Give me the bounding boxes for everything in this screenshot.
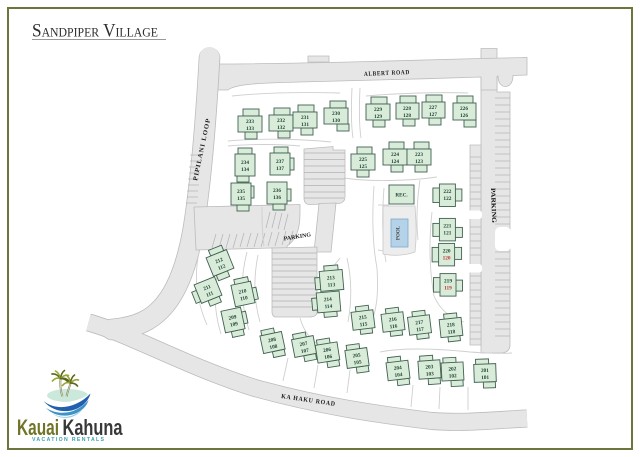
svg-text:102: 102 bbox=[449, 373, 458, 379]
svg-text:219: 219 bbox=[444, 279, 452, 285]
svg-text:205: 205 bbox=[352, 352, 361, 359]
svg-text:116: 116 bbox=[389, 323, 398, 330]
svg-text:236: 236 bbox=[273, 188, 281, 194]
svg-text:136: 136 bbox=[273, 195, 281, 201]
svg-text:213: 213 bbox=[327, 275, 336, 282]
svg-text:130: 130 bbox=[332, 118, 340, 124]
svg-text:Sandpiper Village: Sandpiper Village bbox=[32, 21, 158, 42]
svg-text:115: 115 bbox=[359, 321, 368, 328]
svg-text:237: 237 bbox=[276, 159, 284, 165]
svg-text:105: 105 bbox=[353, 359, 362, 366]
svg-text:129: 129 bbox=[374, 114, 382, 120]
svg-text:101: 101 bbox=[481, 375, 490, 381]
svg-text:221: 221 bbox=[443, 223, 451, 229]
svg-text:137: 137 bbox=[276, 166, 284, 172]
svg-text:120: 120 bbox=[443, 255, 451, 261]
svg-text:135: 135 bbox=[237, 196, 245, 202]
svg-text:104: 104 bbox=[394, 372, 403, 379]
svg-text:203: 203 bbox=[425, 364, 434, 371]
svg-text:214: 214 bbox=[324, 297, 333, 304]
svg-text:218: 218 bbox=[447, 322, 456, 329]
svg-text:226: 226 bbox=[460, 106, 468, 112]
svg-text:POOL: POOL bbox=[397, 225, 402, 240]
svg-text:132: 132 bbox=[277, 125, 285, 131]
svg-text:204: 204 bbox=[393, 365, 402, 372]
svg-text:114: 114 bbox=[324, 304, 332, 311]
svg-text:223: 223 bbox=[415, 152, 423, 158]
svg-text:131: 131 bbox=[301, 122, 309, 128]
svg-text:229: 229 bbox=[374, 107, 382, 113]
svg-text:REC.: REC. bbox=[395, 193, 408, 199]
svg-text:227: 227 bbox=[429, 105, 437, 111]
svg-text:106: 106 bbox=[324, 354, 333, 361]
svg-text:235: 235 bbox=[237, 189, 245, 195]
svg-text:126: 126 bbox=[460, 113, 468, 119]
svg-text:234: 234 bbox=[241, 160, 249, 166]
svg-text:VACATION RENTALS: VACATION RENTALS bbox=[32, 437, 105, 443]
svg-text:127: 127 bbox=[429, 112, 437, 118]
svg-text:224: 224 bbox=[391, 152, 399, 158]
svg-text:124: 124 bbox=[391, 159, 399, 165]
svg-text:133: 133 bbox=[246, 126, 254, 132]
svg-text:215: 215 bbox=[358, 315, 367, 322]
svg-text:202: 202 bbox=[448, 366, 457, 372]
svg-text:117: 117 bbox=[416, 326, 425, 333]
svg-text:201: 201 bbox=[481, 368, 490, 374]
svg-text:128: 128 bbox=[403, 113, 411, 119]
svg-text:230: 230 bbox=[332, 111, 340, 117]
svg-text:119: 119 bbox=[444, 286, 452, 292]
svg-text:222: 222 bbox=[443, 189, 451, 195]
svg-text:220: 220 bbox=[443, 248, 451, 254]
svg-text:225: 225 bbox=[359, 157, 367, 163]
svg-text:121: 121 bbox=[443, 230, 451, 236]
svg-text:122: 122 bbox=[443, 196, 451, 202]
svg-text:233: 233 bbox=[246, 119, 254, 125]
svg-text:228: 228 bbox=[403, 106, 411, 112]
svg-text:232: 232 bbox=[277, 118, 285, 124]
svg-text:216: 216 bbox=[388, 317, 397, 324]
svg-text:118: 118 bbox=[447, 329, 456, 336]
svg-text:PARKING: PARKING bbox=[489, 188, 497, 223]
svg-text:123: 123 bbox=[415, 159, 423, 165]
svg-text:206: 206 bbox=[323, 347, 332, 354]
svg-text:134: 134 bbox=[241, 167, 249, 173]
svg-text:125: 125 bbox=[359, 164, 367, 170]
svg-text:113: 113 bbox=[327, 282, 335, 289]
svg-text:103: 103 bbox=[426, 371, 435, 378]
svg-text:231: 231 bbox=[301, 115, 309, 121]
svg-text:217: 217 bbox=[415, 320, 424, 327]
